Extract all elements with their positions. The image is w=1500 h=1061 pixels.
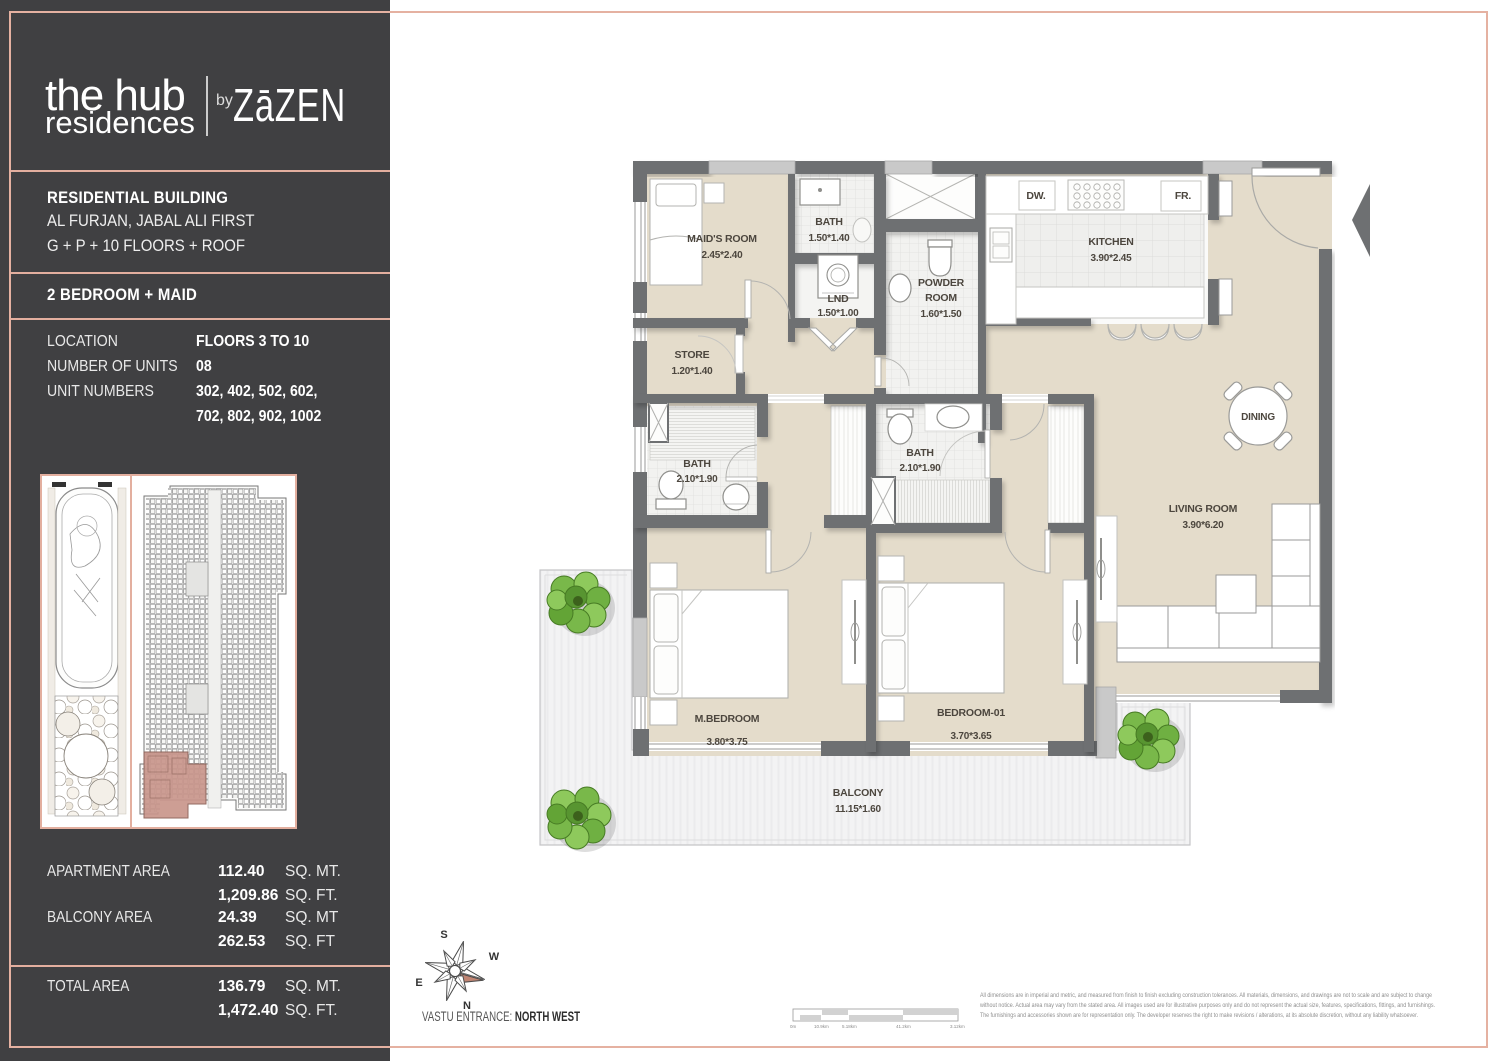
- svg-text:LIVING ROOM: LIVING ROOM: [1169, 503, 1238, 515]
- svg-text:BALCONY: BALCONY: [833, 787, 884, 799]
- svg-text:5.18km: 5.18km: [842, 1024, 857, 1029]
- svg-text:10.9km: 10.9km: [814, 1024, 829, 1029]
- svg-text:3.80*3.75: 3.80*3.75: [706, 737, 748, 748]
- svg-text:1.50*1.40: 1.50*1.40: [808, 233, 850, 244]
- svg-text:BATH: BATH: [683, 458, 711, 470]
- svg-text:ROOM: ROOM: [925, 292, 957, 304]
- svg-text:POWDER: POWDER: [918, 277, 965, 289]
- svg-text:KITCHEN: KITCHEN: [1088, 236, 1133, 248]
- svg-text:DW.: DW.: [1026, 190, 1046, 202]
- svg-text:STORE: STORE: [675, 349, 710, 361]
- svg-text:3.90*6.20: 3.90*6.20: [1182, 520, 1224, 531]
- svg-text:2.45*2.40: 2.45*2.40: [701, 250, 743, 261]
- svg-text:2.10*1.90: 2.10*1.90: [899, 463, 941, 474]
- svg-text:S: S: [440, 929, 447, 941]
- svg-text:W: W: [489, 951, 500, 963]
- svg-text:1.50*1.00: 1.50*1.00: [817, 308, 859, 319]
- svg-text:0m: 0m: [790, 1024, 797, 1029]
- svg-text:1.60*1.50: 1.60*1.50: [920, 309, 962, 320]
- svg-text:BATH: BATH: [815, 216, 843, 228]
- svg-text:The furnishings and accessorie: The furnishings and accessories shown ar…: [980, 1012, 1418, 1019]
- svg-text:1.20*1.40: 1.20*1.40: [671, 366, 713, 377]
- svg-text:LND: LND: [828, 293, 850, 305]
- svg-text:3.12km: 3.12km: [950, 1024, 965, 1029]
- svg-text:2.10*1.90: 2.10*1.90: [676, 474, 718, 485]
- svg-text:41.2km: 41.2km: [896, 1024, 911, 1029]
- svg-text:11.15*1.60: 11.15*1.60: [835, 804, 881, 815]
- svg-text:All dimensions are in imperial: All dimensions are in imperial and metri…: [980, 992, 1433, 999]
- svg-text:BATH: BATH: [906, 447, 934, 459]
- svg-text:E: E: [415, 977, 422, 989]
- svg-text:3.70*3.65: 3.70*3.65: [950, 731, 992, 742]
- svg-text:M.BEDROOM: M.BEDROOM: [695, 713, 760, 725]
- svg-text:FR.: FR.: [1175, 190, 1192, 202]
- svg-text:without notice. Actual area ma: without notice. Actual area may vary fro…: [979, 1002, 1435, 1009]
- svg-text:3.90*2.45: 3.90*2.45: [1090, 253, 1132, 264]
- svg-text:DINING: DINING: [1241, 412, 1275, 423]
- svg-text:BEDROOM-01: BEDROOM-01: [937, 707, 1005, 719]
- svg-text:MAID'S ROOM: MAID'S ROOM: [687, 233, 757, 245]
- svg-text:VASTU ENTRANCE: NORTH WEST: VASTU ENTRANCE: NORTH WEST: [422, 1009, 581, 1024]
